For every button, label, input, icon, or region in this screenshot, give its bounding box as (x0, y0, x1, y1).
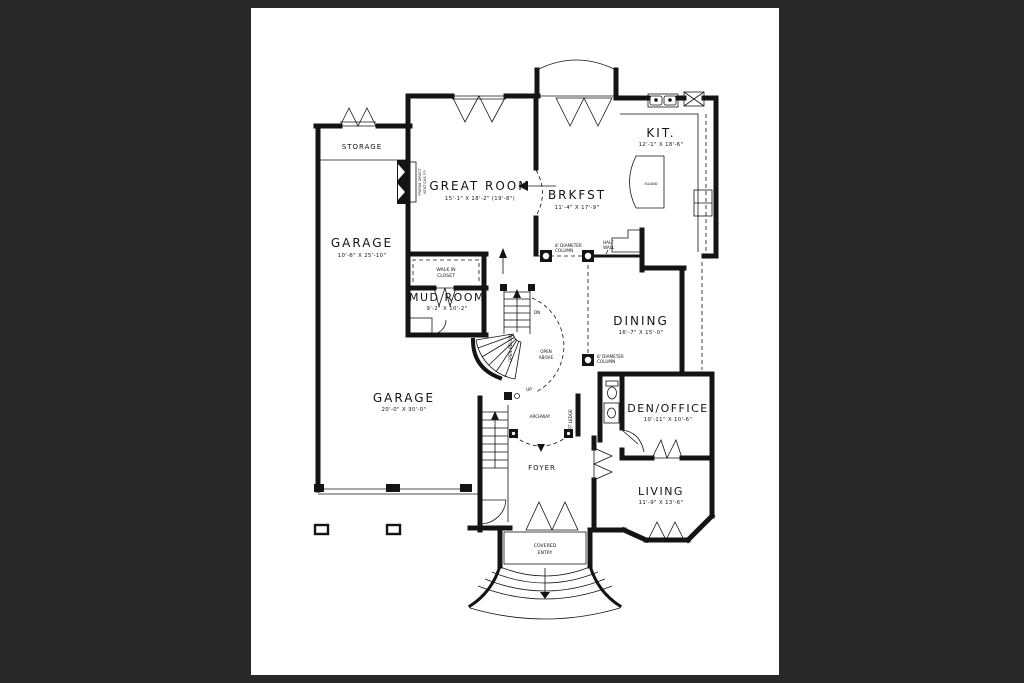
floor-plan-canvas: ISLAND PREFAB DIRECT VENT GAS F.P. (0, 0, 1024, 683)
dining-dims: 16'-7" X 15'-0" (619, 330, 664, 336)
stair-up-label: UP (526, 387, 532, 392)
kitchen-dims: 12'-1" X 18'-6" (639, 142, 684, 148)
covered-entry-line2: ENTRY (538, 550, 553, 556)
column-label-b-line2: COLUMN (597, 359, 615, 364)
living-label: LIVING (638, 485, 684, 498)
open-above-line1: OPEN (540, 349, 552, 354)
foyer-label: FOYER (528, 464, 556, 472)
walk-in-closet-line2: CLOSET (437, 273, 455, 279)
garage-main-label: GARAGE (373, 391, 435, 405)
mud-room-label: MUD ROOM (409, 291, 485, 304)
half-wall-line2: WALL (603, 245, 615, 250)
covered-entry-line1: COVERED (534, 543, 557, 549)
open-above-line2: ABOVE (539, 355, 554, 360)
den-office-dims: 10'-11" X 10'-6" (644, 417, 693, 423)
den-office-label: DEN/OFFICE (627, 402, 709, 415)
archway-label: ARCHWAY (530, 414, 551, 419)
brkfst-label: BRKFST (548, 188, 606, 202)
island-label: ISLAND (645, 182, 658, 186)
garage-main-dims: 20'-0" X 30'-0" (382, 407, 427, 413)
art-ledge-label: ART LEDGE (568, 409, 573, 433)
mud-room-dims: 9'-2" X 10'-2" (426, 306, 467, 312)
brkfst-dims: 11'-4" X 17'-9" (555, 205, 600, 211)
garage-upper-label: GARAGE (331, 236, 393, 250)
column-label-a-line2: COLUMN (555, 248, 573, 253)
great-room-dims: 15'-1" X 18'-2" (19'-8") (445, 196, 515, 202)
dining-label: DINING (613, 314, 669, 328)
fireplace-note-line1: PREFAB DIRECT (418, 167, 422, 195)
garage-upper-dims: 10'-6" X 25'-10" (338, 253, 387, 259)
paper-sheet (251, 8, 779, 675)
great-room-label: GREAT ROOM (429, 179, 530, 193)
fireplace-note-line2: VENT GAS F.P. (423, 170, 427, 194)
open-below-label: OPEN BELOW (508, 334, 513, 362)
kitchen-label: KIT. (646, 126, 675, 140)
walk-in-closet-line1: WALK IN (436, 267, 455, 273)
storage-label: STORAGE (342, 143, 382, 151)
stair-dn-label: DN (534, 310, 540, 315)
living-dims: 11'-9" X 13'-6" (639, 500, 684, 506)
floor-plan-page: ISLAND PREFAB DIRECT VENT GAS F.P. (0, 0, 1024, 683)
